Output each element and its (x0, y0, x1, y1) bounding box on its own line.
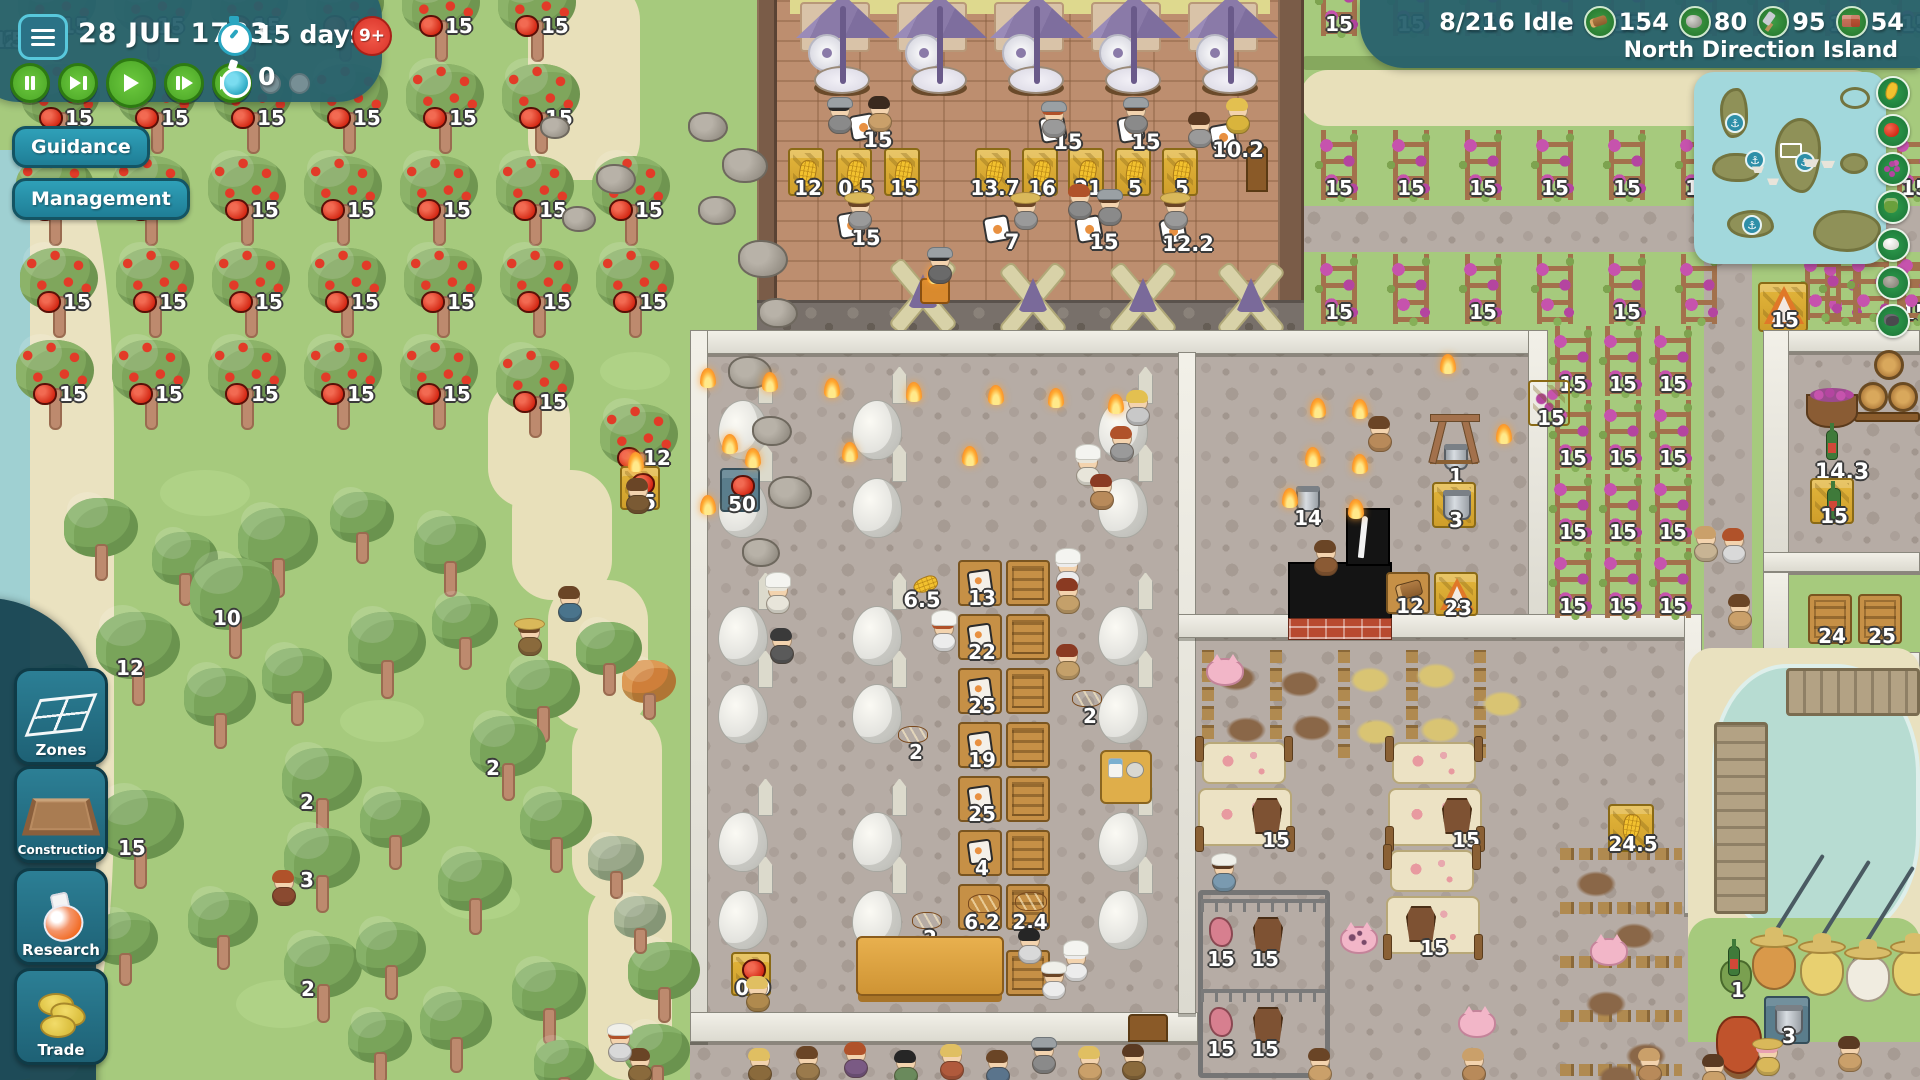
villager[interactable] (1096, 192, 1122, 226)
menu-button[interactable] (18, 14, 68, 60)
island-name: North Direction Island (1624, 38, 1898, 63)
bakery-crate[interactable] (1006, 830, 1050, 876)
grape-trellis[interactable]: 15 (1604, 254, 1650, 324)
minimap[interactable]: ⚓⚓⚓⚓ (1694, 72, 1886, 264)
villager[interactable] (1366, 418, 1392, 452)
villager[interactable] (1700, 1056, 1726, 1080)
villager[interactable] (1076, 1048, 1102, 1080)
boulder[interactable] (738, 240, 788, 278)
villager[interactable] (1636, 1050, 1662, 1080)
boulder[interactable] (758, 298, 798, 328)
grape-trellis[interactable]: 15 (1316, 254, 1362, 324)
bakery-crate[interactable] (1006, 668, 1050, 714)
villager[interactable] (270, 872, 296, 906)
world-map[interactable]: 12120.50.5151513.713.7161621215555151515… (0, 0, 1920, 1080)
bakery-crate[interactable]: 25 (958, 668, 1002, 714)
villager[interactable] (1016, 930, 1042, 964)
barrel-stand (1854, 412, 1920, 422)
villager[interactable] (516, 622, 542, 656)
villager[interactable] (926, 250, 952, 284)
villager[interactable] (1754, 1042, 1780, 1076)
resource-chip-log[interactable]: 154 (1584, 6, 1669, 38)
pig[interactable] (1206, 658, 1244, 686)
villager[interactable] (1224, 100, 1250, 134)
windmill-grinder[interactable] (1091, 2, 1177, 98)
apple-tree[interactable] (188, 892, 264, 1002)
count-label: 15 (1251, 1039, 1279, 1059)
count-label: 5 (1128, 178, 1142, 198)
minimap-island (1813, 210, 1881, 252)
villager[interactable] (1030, 1040, 1056, 1074)
count-label: 15 (1131, 132, 1160, 153)
bakery-crate[interactable] (1006, 776, 1050, 822)
bakery-door[interactable] (1128, 1014, 1168, 1042)
grapes-filter-icon[interactable] (1876, 152, 1910, 186)
apple-tree[interactable] (64, 498, 144, 612)
grape-trellis[interactable]: 15 (1388, 130, 1434, 200)
timer-icon (218, 16, 250, 50)
bread-oven[interactable] (718, 890, 768, 950)
apple-tree[interactable] (420, 992, 498, 1080)
wine-barrel[interactable] (1888, 382, 1918, 412)
grape-trellis[interactable]: 15 (1550, 548, 1596, 618)
hide-stretcher[interactable]: 15 (1198, 742, 1294, 850)
grape-trellis[interactable]: 15 (1604, 130, 1650, 200)
bread-oven[interactable] (852, 684, 902, 744)
count-label: 15 (890, 178, 918, 198)
forge-brick-base (1288, 618, 1392, 640)
resource-chip-stone[interactable]: 80 (1679, 6, 1747, 38)
apple-tree[interactable] (614, 896, 672, 988)
count-label: 15 (1613, 178, 1641, 198)
fast-forward-button[interactable] (164, 63, 204, 103)
wine-barrel[interactable] (1858, 382, 1888, 412)
wine-crate[interactable]: 15 (1810, 478, 1854, 524)
grape-trellis[interactable]: 15 (1532, 130, 1578, 200)
mud-patch (1272, 666, 1328, 702)
pig[interactable] (1590, 938, 1628, 966)
count-label: 22 (968, 642, 996, 662)
covered-grape-crate[interactable]: 15 (1758, 282, 1808, 332)
villager[interactable] (746, 1050, 772, 1080)
game-viewport: 12120.50.5151513.713.7161621215555151515… (0, 0, 1920, 1080)
dairy-table[interactable] (1100, 750, 1152, 804)
apple-tree[interactable]: 15 (208, 340, 292, 458)
curd-bag[interactable] (1846, 956, 1890, 1002)
wheat-crate[interactable]: 15 (884, 148, 920, 196)
grape-trellis[interactable]: 15 (1650, 400, 1696, 470)
guidance-button[interactable]: Guidance (12, 126, 150, 168)
bakery-table[interactable] (856, 936, 1004, 996)
hay-patch (1342, 662, 1398, 698)
villager[interactable] (892, 1052, 918, 1080)
fence-post-line (1560, 902, 1682, 914)
boulder[interactable] (596, 164, 636, 194)
apple-tree[interactable]: 3 (284, 828, 366, 944)
windmill-grinder[interactable] (994, 2, 1080, 98)
grape-trellis[interactable]: 15 (1650, 474, 1696, 544)
top-right-panel: 8/216 Idle 154 80 95 54 North Direction … (1360, 0, 1920, 68)
disabled-icon (289, 73, 310, 94)
count-label: 15 (1559, 448, 1587, 468)
apple-tree[interactable] (184, 668, 262, 780)
corn-crate[interactable]: 24.5 (1608, 804, 1654, 852)
grape-trellis[interactable]: 15 (1600, 474, 1646, 544)
apple-tree[interactable] (534, 1040, 600, 1080)
apple-tree[interactable] (432, 596, 504, 702)
count-label: 50 (728, 494, 756, 514)
warning-crate[interactable]: 23 (1434, 572, 1478, 616)
building-wall (690, 330, 708, 1042)
villager[interactable] (744, 978, 770, 1012)
grape-trellis[interactable] (1388, 254, 1434, 324)
building-wall (1178, 352, 1196, 1014)
count-label: 15 (1325, 14, 1353, 34)
tool-rack[interactable] (1430, 412, 1478, 464)
count-label: 15 (1207, 1039, 1235, 1059)
windmill-blades[interactable] (1206, 256, 1296, 340)
villager[interactable] (1124, 392, 1150, 426)
villager[interactable] (1088, 476, 1114, 510)
apple-tree[interactable]: 15 (96, 790, 190, 918)
wine-bottle[interactable] (1728, 946, 1740, 976)
villager[interactable] (1162, 196, 1188, 230)
boulder[interactable] (722, 148, 768, 183)
storage-crate[interactable]: 24 (1808, 594, 1852, 644)
sack-filter-icon[interactable] (1876, 190, 1910, 224)
count-label: 15 (1559, 522, 1587, 542)
villager[interactable] (1186, 114, 1212, 148)
science-count: 0 (258, 62, 275, 91)
building-wall (1763, 330, 1789, 578)
count-label: 25 (1868, 626, 1896, 646)
grape-trellis[interactable]: 15 (1600, 548, 1646, 618)
wheat-crate[interactable]: 13.7 (975, 148, 1011, 196)
wheat-crate[interactable]: 5 (1115, 148, 1151, 196)
wheat-crate[interactable]: 0.5 (836, 148, 872, 196)
villager[interactable] (1054, 646, 1080, 680)
bread-oven[interactable] (1098, 684, 1148, 744)
villager[interactable] (1122, 100, 1148, 134)
resource-chip-bricks[interactable]: 54 (1836, 6, 1904, 38)
count-label: 15 (1469, 302, 1497, 322)
grinder-pole (937, 6, 943, 84)
grape-trellis[interactable]: 15 (1600, 400, 1646, 470)
hide-stretcher[interactable]: 15 (1388, 742, 1484, 850)
bread-oven[interactable] (718, 684, 768, 744)
villager[interactable] (1120, 1046, 1146, 1080)
count-label: 23 (1444, 598, 1472, 618)
storage-crate[interactable]: 25 (1858, 594, 1902, 644)
zones-grid-icon (25, 693, 98, 737)
ship-icon (1821, 157, 1835, 168)
apple-tree[interactable] (348, 612, 432, 730)
boulder[interactable] (562, 206, 596, 232)
villager[interactable] (984, 1052, 1010, 1080)
tools-count: 95 (1792, 8, 1825, 36)
grape-trellis[interactable] (1532, 254, 1578, 324)
count-label: 15 (1609, 522, 1637, 542)
log-icon (1584, 6, 1616, 38)
wine-barrel[interactable] (1874, 350, 1904, 380)
stone-filter-icon[interactable] (1876, 266, 1910, 300)
straw-lid (1798, 940, 1846, 954)
bakery-crate[interactable]: 19 (958, 722, 1002, 768)
research-label: Research (22, 941, 100, 959)
log-count: 154 (1619, 8, 1669, 36)
wheat-crate[interactable]: 16 (1022, 148, 1058, 196)
wheat-crate[interactable]: 12 (788, 148, 824, 196)
mud-patch (1578, 986, 1634, 1022)
grape-trellis[interactable] (1676, 254, 1722, 324)
construction-button[interactable]: Construction (14, 766, 108, 863)
villager[interactable] (866, 98, 892, 132)
count-label: 12.2 (1162, 234, 1214, 255)
count-label: 3 (1782, 1026, 1796, 1046)
count-label: 15 (1609, 448, 1637, 468)
grinder-pole (1034, 6, 1040, 84)
count-label: 7 (1005, 232, 1020, 253)
boulder[interactable] (540, 116, 570, 139)
straw-lid (1844, 946, 1892, 960)
apple-tree[interactable]: 15 (112, 340, 196, 458)
management-button[interactable]: Management (12, 178, 190, 220)
wheat-crate[interactable]: 5 (1162, 148, 1198, 196)
count-label: 15 (1251, 949, 1279, 969)
count-label: 15 (863, 130, 892, 151)
villager[interactable] (842, 1044, 868, 1078)
bakery-crate[interactable]: 22 (958, 614, 1002, 660)
count-label: 15 (1609, 596, 1637, 616)
straw-lid (1750, 934, 1798, 948)
count-label: 15 (1537, 408, 1565, 428)
timer-value: 15 days (256, 20, 365, 49)
grape-trellis[interactable]: 15 (1460, 254, 1506, 324)
building-wall (690, 330, 1548, 354)
resource-chip-tools[interactable]: 95 (1757, 6, 1825, 38)
bricks-icon (1836, 6, 1868, 38)
grinder-pole (1228, 6, 1234, 84)
count-label: 15 (1541, 178, 1569, 198)
villager[interactable] (1040, 104, 1066, 138)
top-left-panel: 28 JUL 1733 15 days 0 (0, 0, 382, 102)
wooden-bridge[interactable] (1786, 668, 1920, 716)
apple-tree[interactable]: 15 (16, 340, 100, 458)
villager[interactable] (1460, 1050, 1486, 1080)
apple-tree[interactable] (576, 622, 648, 728)
windmill-blades[interactable] (988, 256, 1078, 340)
zones-label: Zones (36, 741, 87, 759)
apple-tree[interactable] (348, 1012, 418, 1080)
count-label: 15 (1659, 448, 1687, 468)
coal-filter-icon[interactable] (1876, 304, 1910, 338)
grape-trellis[interactable]: 15 (1460, 130, 1506, 200)
villager[interactable] (556, 588, 582, 622)
bakery-crate[interactable]: 2.4 (1006, 884, 1050, 930)
villager[interactable] (606, 1028, 632, 1062)
grinder-pole (840, 6, 846, 84)
anchor-icon: ⚓ (1742, 215, 1762, 235)
count-label: 4 (975, 858, 989, 878)
grape-trellis[interactable]: 15 (1650, 548, 1696, 618)
count-label: 12 (794, 178, 822, 198)
count-label: 2 (909, 742, 923, 762)
mud-patch (1568, 866, 1624, 902)
boulder[interactable] (688, 112, 728, 142)
grape-crate[interactable]: 15 (1528, 380, 1570, 426)
apple-tree[interactable] (262, 648, 338, 758)
windmill-blades[interactable] (1098, 256, 1188, 340)
minimap-island (1840, 153, 1868, 174)
villager[interactable] (938, 1046, 964, 1080)
count-label: 24.5 (1608, 834, 1657, 854)
ship-icon (1767, 175, 1779, 185)
zones-button[interactable]: Zones (14, 668, 108, 765)
count-label: 15 (1609, 374, 1637, 394)
bakery-crate[interactable] (1006, 560, 1050, 606)
count-label: 15 (1325, 178, 1353, 198)
apple-filter-icon[interactable] (1876, 114, 1910, 148)
count-label: 1 (1731, 980, 1745, 1000)
apple-tree[interactable]: 15 (400, 340, 484, 458)
curd-bag[interactable] (1800, 950, 1844, 996)
villager[interactable] (826, 100, 852, 134)
boulder[interactable] (698, 196, 736, 225)
windmill-grinder[interactable] (800, 2, 886, 98)
villager[interactable] (930, 618, 956, 652)
grape-trellis[interactable]: 15 (1316, 0, 1362, 36)
apple-tree[interactable] (330, 492, 400, 596)
curd-bag[interactable] (1752, 944, 1796, 990)
trade-button[interactable]: Trade (14, 968, 108, 1065)
bakery-crate[interactable]: 25 (958, 776, 1002, 822)
stone-icon (1679, 6, 1711, 38)
apple-tree[interactable]: 15 (596, 248, 680, 366)
villager[interactable] (846, 196, 872, 230)
villager[interactable] (624, 480, 650, 514)
villager[interactable] (768, 630, 794, 664)
apple-tree[interactable] (520, 792, 598, 904)
windmill-grinder[interactable] (1188, 2, 1274, 98)
wood-crate[interactable]: 12 (1386, 572, 1430, 614)
hide-stretcher[interactable]: 15 (1386, 850, 1482, 958)
count-label: 13 (968, 588, 996, 608)
count-label: 15 (1262, 830, 1290, 850)
count-label: 12 (1396, 596, 1424, 616)
count-label: 15 (1089, 232, 1118, 253)
bakery-crate[interactable]: 4 (958, 830, 1002, 876)
count-label: 15 (1659, 596, 1687, 616)
count-label: 19 (968, 750, 996, 770)
apple-tree[interactable]: 15 (496, 348, 580, 466)
grape-trellis[interactable]: 15 (1600, 326, 1646, 396)
apple-crate[interactable]: 50 (720, 468, 760, 512)
trade-label: Trade (37, 1041, 84, 1059)
hay-patch (1474, 686, 1530, 722)
pig[interactable] (1458, 1010, 1496, 1038)
count-label: 6.5 (903, 590, 940, 611)
boulder[interactable] (742, 538, 780, 567)
anchor-icon: ⚓ (1725, 113, 1745, 133)
count-label: 15 (1559, 596, 1587, 616)
count-label: 6.2 (964, 912, 999, 932)
building-wall (1763, 552, 1920, 572)
grape-trellis[interactable]: 15 (1316, 130, 1362, 200)
bricks-count: 54 (1871, 8, 1904, 36)
villager[interactable] (1726, 596, 1752, 630)
boulder[interactable] (768, 476, 812, 509)
science-icon (220, 60, 250, 92)
count-label: 25 (968, 804, 996, 824)
count-label: 15 (1659, 522, 1687, 542)
villager[interactable] (1040, 966, 1066, 1000)
bakery-crate[interactable] (1006, 614, 1050, 660)
forge-counter[interactable] (1288, 562, 1392, 622)
bread-oven[interactable] (852, 478, 902, 538)
villager[interactable] (1306, 1050, 1332, 1080)
play-button[interactable] (106, 58, 156, 108)
apple-tree[interactable] (438, 852, 518, 966)
bakery-crate[interactable]: 13 (958, 560, 1002, 606)
pause-button[interactable] (10, 63, 50, 103)
wooden-bridge[interactable] (1714, 722, 1768, 914)
grape-trellis[interactable]: 15 (1550, 474, 1596, 544)
grape-trellis[interactable]: 15 (1650, 326, 1696, 396)
count-label: 10.2 (1212, 140, 1264, 161)
boulder[interactable] (752, 416, 792, 446)
corn-filter-icon[interactable] (1876, 76, 1910, 110)
step-button[interactable] (58, 63, 98, 103)
bread-oven[interactable] (1098, 890, 1148, 950)
notification-badge[interactable]: 9+ (352, 16, 392, 56)
villager[interactable] (1836, 1038, 1862, 1072)
villager[interactable] (764, 580, 790, 614)
apple-tree[interactable] (360, 792, 436, 902)
tools-icon (1757, 6, 1789, 38)
villager[interactable] (794, 1048, 820, 1080)
bucket-crate[interactable]: 3 (1432, 482, 1476, 528)
bakery-crate[interactable]: 6.2 (958, 884, 1002, 930)
villager[interactable] (1210, 858, 1236, 892)
villager[interactable] (1108, 428, 1134, 462)
count-label: 15 (1659, 374, 1687, 394)
flour-filter-icon[interactable] (1876, 228, 1910, 262)
research-button[interactable]: Research (14, 868, 108, 965)
villager[interactable] (1054, 580, 1080, 614)
apple-tree[interactable]: 12 (96, 612, 186, 736)
count-label: 14 (1294, 508, 1322, 528)
pig[interactable] (1340, 926, 1378, 954)
count-label: 15 (1771, 310, 1799, 330)
apple-tree[interactable]: 15 (304, 340, 388, 458)
count-label: 15 (1207, 949, 1235, 969)
villager[interactable] (1312, 542, 1338, 576)
bucket-crate[interactable]: 3 (1764, 996, 1810, 1044)
villager[interactable] (1012, 196, 1038, 230)
villager[interactable] (1692, 528, 1718, 562)
villager[interactable] (1066, 186, 1092, 220)
hay-patch (1408, 658, 1464, 694)
villager[interactable] (1720, 530, 1746, 564)
wine-bottle[interactable] (1826, 430, 1838, 460)
grass-patch (160, 470, 250, 516)
resource-filter-column (1876, 76, 1910, 338)
flask-icon (37, 889, 86, 942)
bakery-crate[interactable] (1006, 722, 1050, 768)
count-label: 15 (1397, 178, 1425, 198)
count-label: 2 (1083, 706, 1097, 726)
windmill-grinder[interactable] (897, 2, 983, 98)
